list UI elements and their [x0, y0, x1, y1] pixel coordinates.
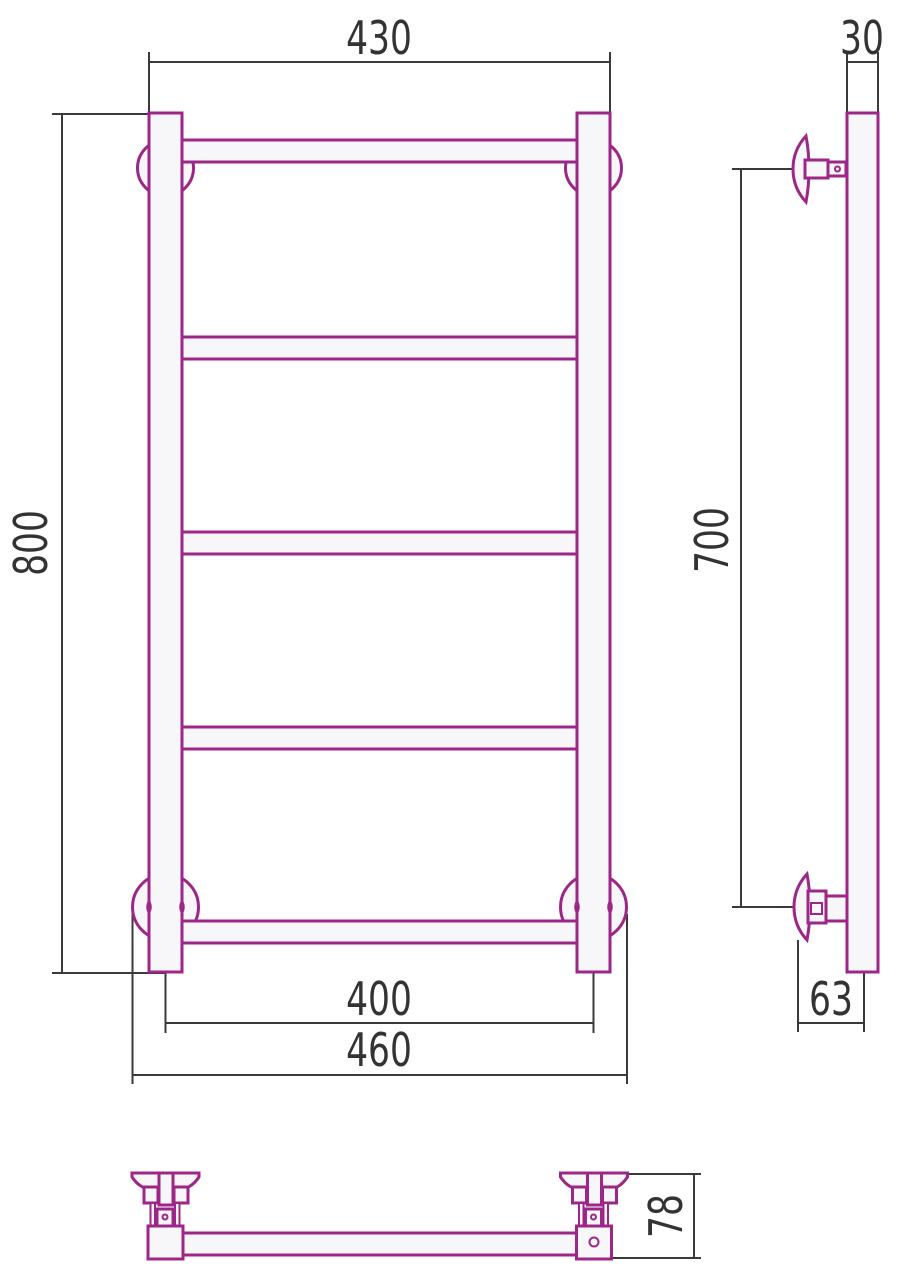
- dimension-overall-height: 800: [4, 114, 165, 973]
- side-bottom-screw: [811, 903, 822, 914]
- left-post: [149, 113, 182, 972]
- bv-nut-screw: [163, 1215, 168, 1220]
- side-top-bracket: [793, 136, 846, 202]
- dimension-profile-width: 30: [840, 11, 884, 113]
- bv-column: [159, 1173, 173, 1205]
- dimension-mount-spacing: 700: [685, 169, 795, 907]
- bracket-screws: [146, 899, 613, 915]
- dimension-lines: 430 30 800 700 400: [4, 11, 884, 1258]
- bottom-view-right-cap-hole: [590, 1238, 599, 1247]
- bottom-view: [132, 1173, 628, 1259]
- front-view: [133, 113, 627, 972]
- technical-drawing-page: 430 30 800 700 400: [0, 0, 903, 1280]
- side-top-screw: [835, 167, 840, 172]
- side-top-stem: [805, 160, 828, 178]
- bv-block-right: [174, 1187, 188, 1203]
- side-bottom-bracket: [794, 874, 847, 940]
- rung-2: [180, 337, 578, 359]
- dimension-top-width: 430: [149, 11, 610, 113]
- rung-5: [180, 921, 578, 943]
- side-post: [847, 113, 878, 972]
- rungs: [180, 140, 578, 943]
- dimension-bracket-depth: 78: [612, 1174, 700, 1258]
- bv-rod-right: [175, 1203, 180, 1227]
- dimension-label-460: 460: [346, 1023, 412, 1077]
- side-view: [793, 113, 878, 972]
- rung-4: [180, 727, 578, 749]
- bottom-view-tube: [183, 1233, 577, 1255]
- dimension-label-430: 430: [346, 11, 412, 65]
- rung-1: [180, 140, 578, 162]
- rung-3: [180, 532, 578, 554]
- dimension-label-800: 800: [4, 510, 58, 576]
- dimension-label-700: 700: [685, 507, 739, 573]
- bv-rod-left: [151, 1203, 156, 1227]
- bv-block-left: [144, 1187, 158, 1203]
- side-bottom-stem: [826, 896, 847, 921]
- towel-rail-drawing: 430 30 800 700 400: [0, 0, 903, 1280]
- dimension-label-63: 63: [809, 972, 853, 1026]
- dimension-label-78: 78: [639, 1194, 693, 1238]
- dimension-label-30: 30: [840, 11, 884, 65]
- dimension-label-400: 400: [346, 972, 412, 1026]
- bv-post-cap: [148, 1226, 183, 1259]
- right-post: [577, 113, 610, 972]
